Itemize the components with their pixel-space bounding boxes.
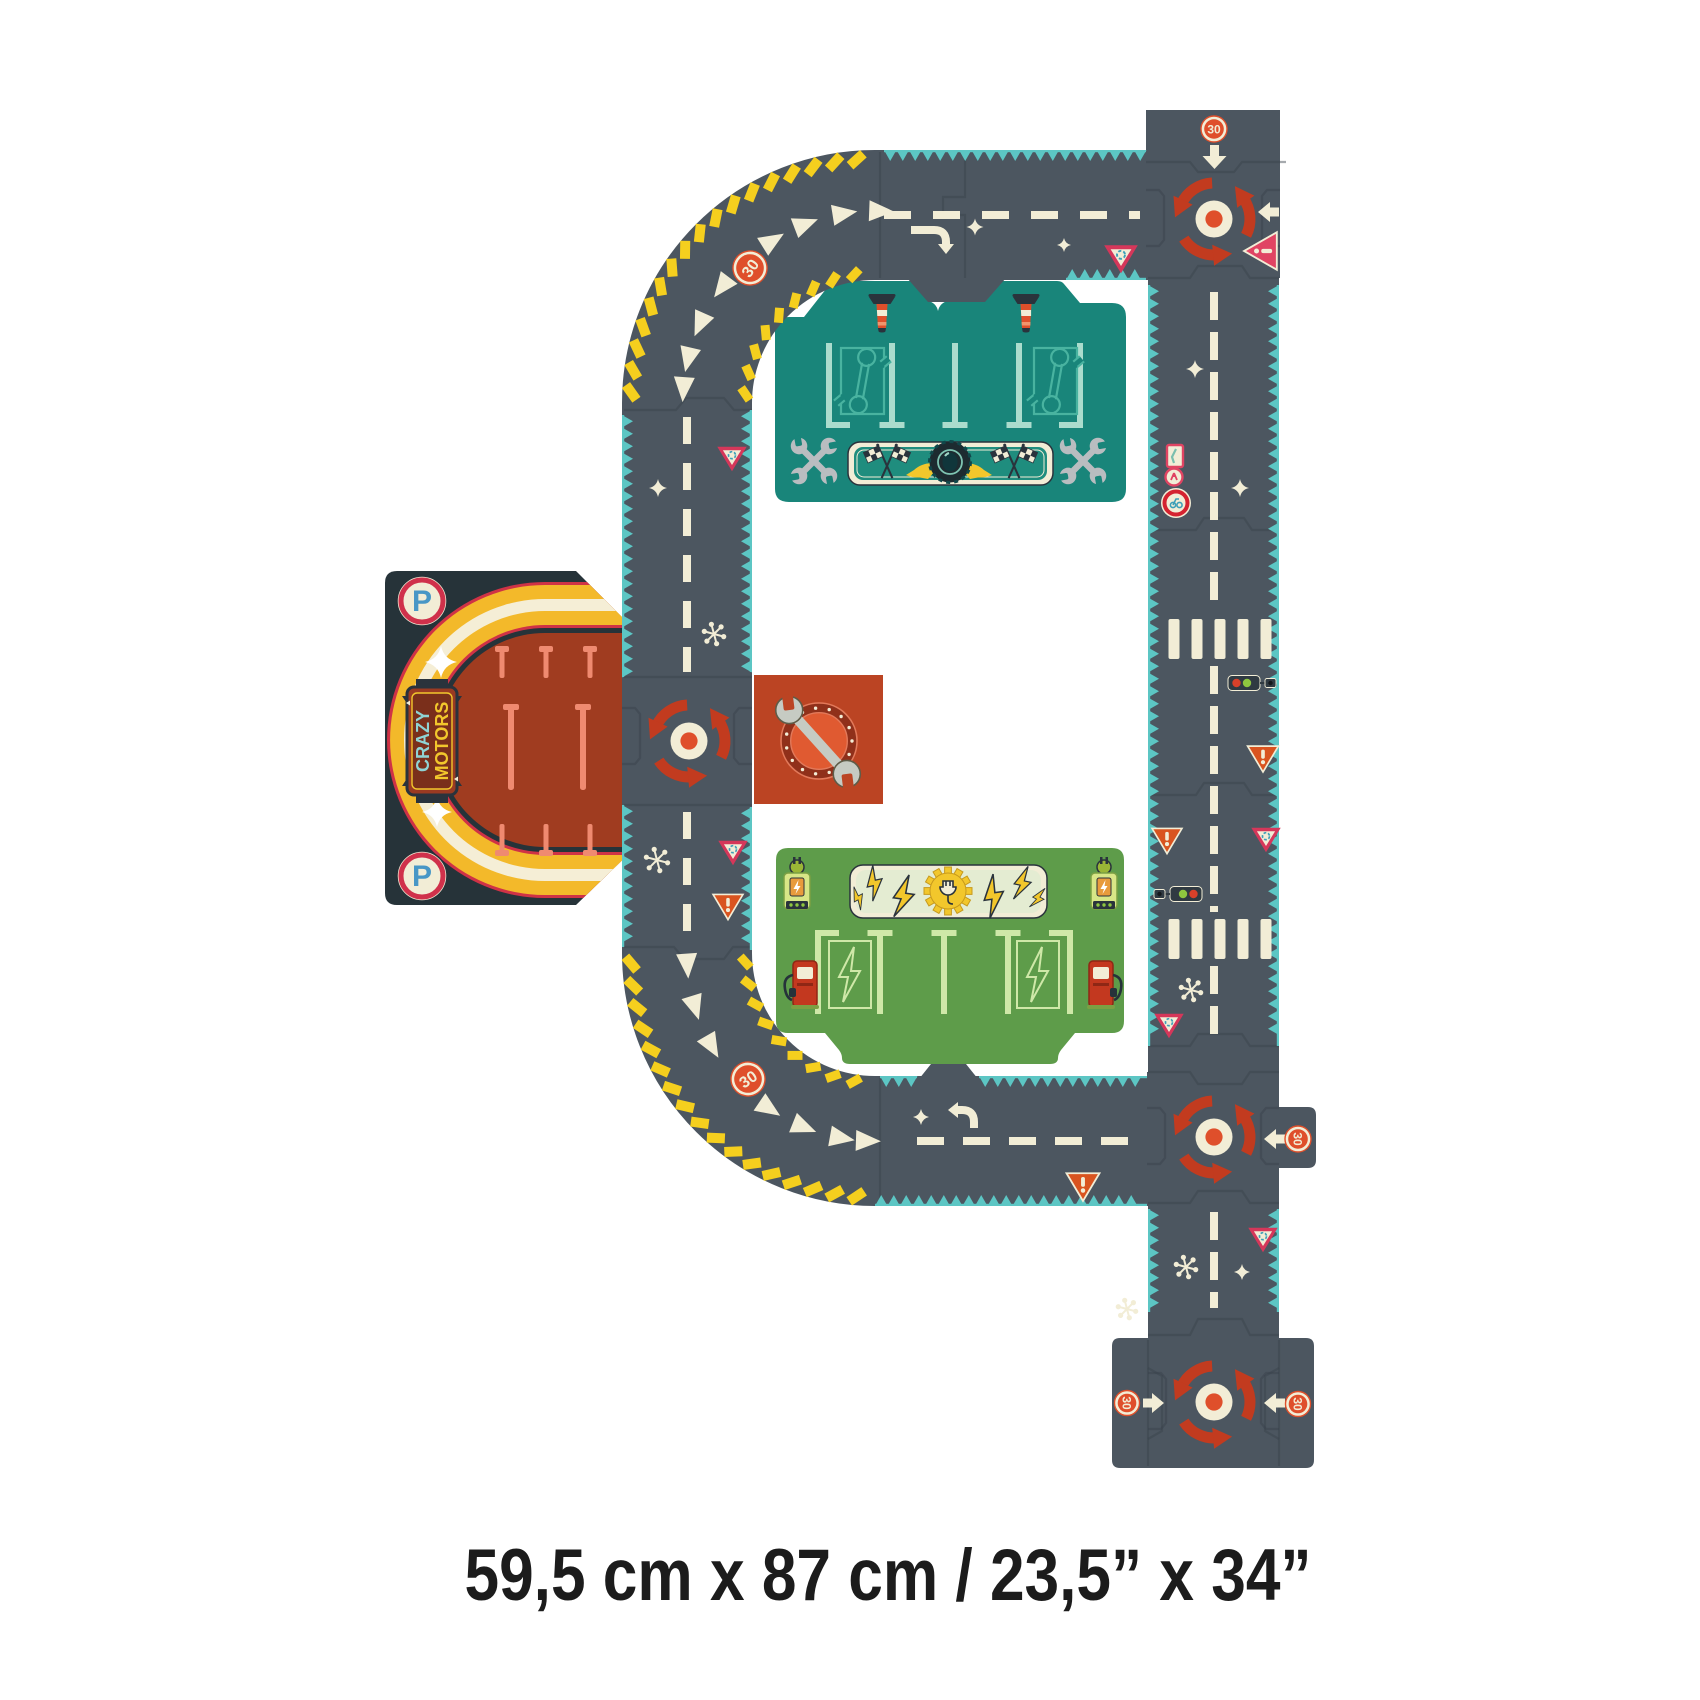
svg-text:CRAZY: CRAZY — [413, 710, 433, 772]
svg-text:MOTORS: MOTORS — [432, 702, 452, 781]
svg-text:P: P — [412, 585, 432, 618]
svg-text:30: 30 — [1120, 1396, 1134, 1410]
svg-text:30: 30 — [1207, 122, 1221, 136]
svg-text:P: P — [412, 860, 432, 893]
svg-text:30: 30 — [1291, 1132, 1305, 1146]
svg-text:59,5 cm x 87 cm / 23,5” x 34”: 59,5 cm x 87 cm / 23,5” x 34” — [465, 1535, 1312, 1616]
svg-text:30: 30 — [1291, 1397, 1305, 1411]
